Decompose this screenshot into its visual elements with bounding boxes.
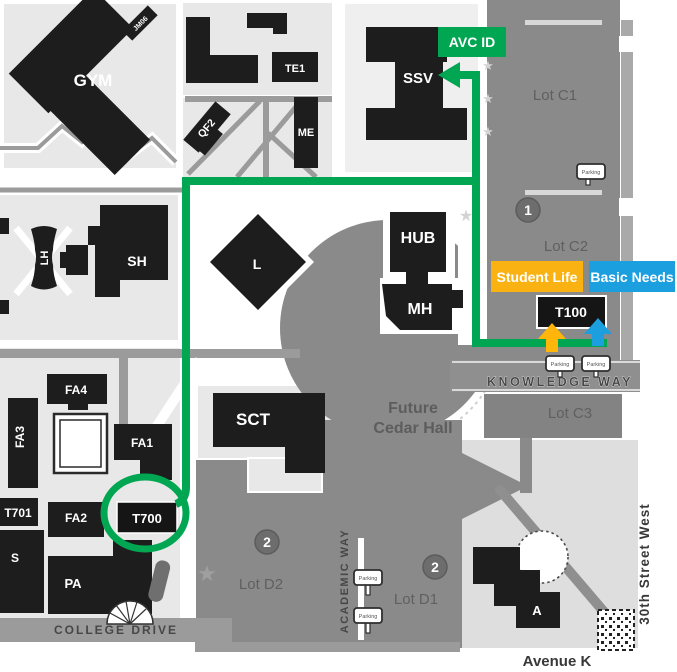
star-decoration: ★ [482,58,494,73]
campus-map-canvas: ★ ★ ★ ★ ★ GYM JM06 TE1 ME QF2 SSV HUB MH… [0,0,677,672]
lot-c2-label: Lot C2 [544,238,588,255]
lot-divider-1 [525,20,602,25]
lot-d1-label: Lot D1 [394,591,438,608]
strip-gap-1 [619,36,635,52]
mh-label: MH [408,301,433,318]
building-north-tab [273,26,287,34]
building-north-l [186,17,210,83]
gym-label: GYM [74,71,113,90]
a-label: A [532,603,542,618]
building-fa4-tab [68,404,88,410]
pa-label: PA [64,576,82,591]
parking-sign-text: Parking [582,170,601,176]
student-life-text: Student Life [497,269,578,285]
strip-gap-2 [619,198,635,216]
marker-2-lot-d1: 2 [423,555,447,579]
hub-mh-neck [406,270,428,284]
star-decoration: ★ [482,91,494,106]
t701-label: T701 [4,506,32,520]
lot-c3-label: Lot C3 [548,405,592,422]
road-edge [452,389,640,391]
te1-label: TE1 [285,63,305,75]
marker-2-text: 2 [263,534,271,550]
campus-map: ★ ★ ★ ★ ★ GYM JM06 TE1 ME QF2 SSV HUB MH… [0,0,677,672]
construction-hatch [600,612,632,648]
lh-label: LH [39,251,51,266]
basic-needs-text: Basic Needs [590,269,673,285]
road-horizontal [0,349,300,358]
road-stub [520,438,532,493]
sh-label: SH [127,253,146,269]
s-label: S [11,551,19,565]
marker-1-text: 1 [524,202,532,218]
road-south [195,642,460,652]
t700-label: T700 [132,511,162,526]
building-north-l2 [210,55,258,83]
t100-label: T100 [555,304,587,320]
thirtieth-street-label: 30th Street West [637,503,652,625]
lot-c1-label: Lot C1 [533,87,577,104]
l-label: L [253,256,262,272]
marker-2-lot-d2: 2 [255,530,279,554]
avc-id-callout: AVC ID [438,27,506,57]
building-north-bar [247,13,287,28]
academic-way-centerline [358,538,364,640]
ssv-label: SSV [403,70,433,87]
parking-sign-text: Parking [359,614,378,620]
parking-sign-text: Parking [359,576,378,582]
academic-way-label: ACADEMIC WAY [339,529,351,633]
fa4-label: FA4 [65,383,87,397]
marker-1-lot-c: 1 [516,198,540,222]
lot-d2-label: Lot D2 [239,576,283,593]
future-hall-line2: Cedar Hall [373,420,452,437]
edge-building [0,218,9,234]
building-lh-annex2 [66,245,88,275]
marker-2-text: 2 [431,559,439,575]
fa3-label: FA3 [13,426,27,448]
student-life-callout: Student Life [491,261,583,292]
future-hall-line1: Future [388,400,438,417]
avenue-k-label: Avenue K [523,653,592,670]
hub-label: HUB [401,230,436,247]
sct-label: SCT [236,410,271,429]
me-label: ME [298,127,315,139]
parking-sign-text: Parking [551,362,570,368]
art-gallery-inner [60,420,101,467]
college-drive-label: COLLEGE DRIVE [54,623,178,637]
basic-needs-callout: Basic Needs [589,261,675,292]
fa2-label: FA2 [65,511,87,525]
avc-id-text: AVC ID [449,34,495,50]
lot-divider-2 [525,190,602,195]
building-s [0,530,44,613]
star-decoration: ★ [459,208,473,225]
star-decoration: ★ [197,561,217,586]
edge-building [0,300,9,314]
star-decoration: ★ [482,124,494,139]
parking-sign-text: Parking [587,362,606,368]
fa1-label: FA1 [131,436,153,450]
